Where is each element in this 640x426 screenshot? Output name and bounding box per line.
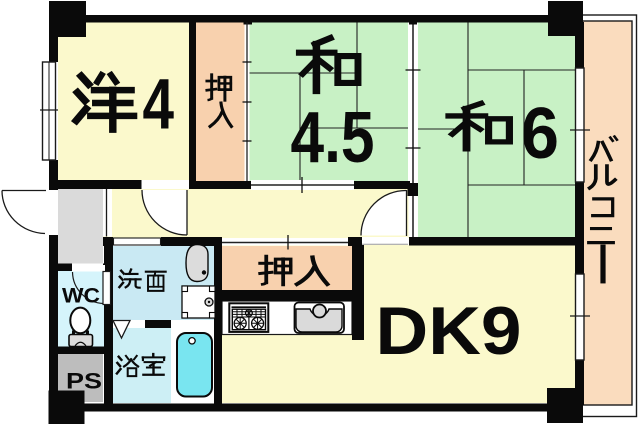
svg-text:6: 6 [521, 94, 559, 174]
svg-text:4.5: 4.5 [291, 98, 375, 178]
svg-text:WC: WC [62, 285, 100, 308]
svg-text:DK9: DK9 [376, 293, 522, 369]
svg-text:PS: PS [66, 369, 102, 394]
svg-text:4: 4 [143, 66, 175, 145]
